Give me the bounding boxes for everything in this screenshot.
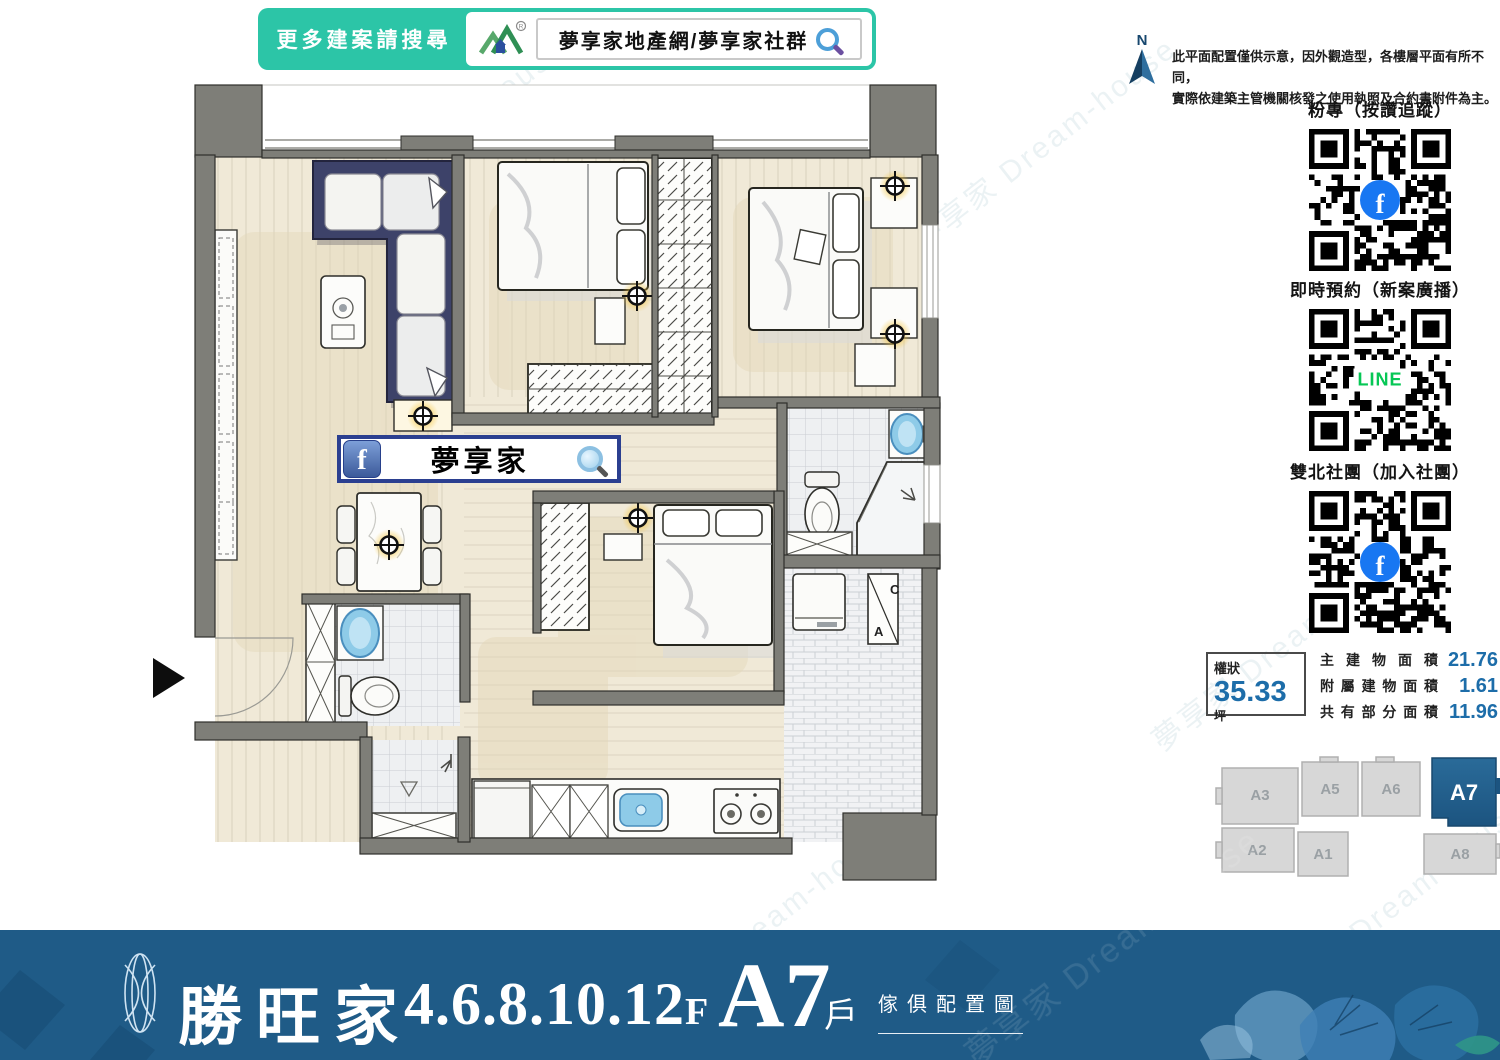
qr-code-facebook-group: f bbox=[1309, 491, 1451, 633]
unit-suffix: 戶 bbox=[824, 988, 858, 1037]
search-banner: 更多建案請搜尋 R 夢享家地產網/夢享家社群 bbox=[258, 8, 876, 70]
area-row-value: 11.96 bbox=[1438, 701, 1498, 724]
area-row-label: 附屬建物面積 bbox=[1320, 676, 1438, 696]
qr-section-facebook-page: 粉專（按讚追蹤） f bbox=[1278, 96, 1482, 271]
svg-text:R: R bbox=[519, 24, 524, 31]
facebook-icon: f bbox=[343, 440, 381, 478]
search-banner-body: R 夢享家地產網/夢享家社群 bbox=[466, 12, 872, 66]
unit-number: A7 bbox=[718, 942, 830, 1048]
area-row-label: 主建物面積 bbox=[1320, 650, 1438, 670]
pillow bbox=[833, 194, 859, 252]
north-label: N bbox=[1126, 32, 1158, 49]
north-arrow-icon bbox=[1129, 49, 1155, 85]
floor-numbers: 4.6.8.10.12F bbox=[404, 970, 709, 1039]
unit-label-a1: A1 bbox=[1313, 846, 1332, 863]
line-icon: LINE bbox=[1353, 369, 1406, 392]
flyer-page: 夢享家 Dream-house 夢享家 Dream-house 夢享家 Drea… bbox=[0, 0, 1500, 1060]
search-input[interactable]: 夢享家地產網/夢享家社群 bbox=[536, 18, 862, 60]
desk bbox=[855, 344, 895, 386]
facebook-search-banner: f 夢享家 bbox=[337, 435, 621, 483]
fridge bbox=[474, 781, 530, 838]
unit-label-a8: A8 bbox=[1450, 846, 1469, 863]
area-row-label: 共有部分面積 bbox=[1320, 702, 1438, 722]
qr-section-title: 粉專（按讚追蹤） bbox=[1278, 96, 1482, 121]
pillow bbox=[833, 260, 859, 318]
brand-name: 勝旺家 bbox=[178, 966, 412, 1058]
washing-machine bbox=[793, 574, 845, 630]
north-indicator: N bbox=[1126, 32, 1158, 90]
nightstand bbox=[595, 298, 625, 344]
watercolor-flowers bbox=[1200, 985, 1500, 1060]
unit-label-a5: A5 bbox=[1320, 781, 1339, 798]
pillow bbox=[617, 168, 645, 224]
kitchen-cabinet-left bbox=[215, 230, 237, 560]
toilet bbox=[351, 677, 399, 715]
area-row-main: 主建物面積 21.76 坪 bbox=[1320, 647, 1500, 673]
area-row-ancillary: 附屬建物面積 1.61 坪 bbox=[1320, 673, 1500, 699]
unit-key-diagram: A3 A5 A6 A2 A1 A8 A7 bbox=[1208, 748, 1500, 880]
pillow bbox=[663, 510, 709, 536]
unit-label-a2: A2 bbox=[1247, 842, 1266, 859]
toilet-tank bbox=[805, 472, 839, 487]
unit-label-a6: A6 bbox=[1381, 781, 1400, 798]
qr-section-facebook-group: 雙北社團（加入社團） f bbox=[1278, 458, 1482, 633]
qr-section-title: 雙北社團（加入社團） bbox=[1278, 458, 1482, 483]
unit-label-a3: A3 bbox=[1250, 787, 1269, 804]
kitchen bbox=[472, 779, 780, 840]
entrance-arrow-icon bbox=[153, 658, 185, 698]
area-row-shared: 共有部分面積 11.96 坪 bbox=[1320, 699, 1500, 725]
disclaimer-line-1: 此平面配置僅供示意，因外觀造型，各樓層平面有所不同， bbox=[1172, 46, 1500, 88]
facebook-search-text: 夢享家 bbox=[383, 438, 577, 480]
search-prompt-button[interactable]: 更多建案請搜尋 bbox=[262, 12, 466, 66]
top-balcony bbox=[262, 85, 870, 155]
facebook-icon: f bbox=[1360, 180, 1400, 220]
qr-section-line: 即時預約（新案廣播） LINE bbox=[1278, 276, 1482, 451]
qr-section-title: 即時預約（新案廣播） bbox=[1278, 276, 1482, 301]
dining-chair bbox=[337, 548, 355, 585]
unit-label-a7: A7 bbox=[1450, 780, 1478, 805]
facebook-icon: f bbox=[1360, 542, 1400, 582]
dream-house-logo: R bbox=[476, 18, 526, 60]
closet-column bbox=[657, 158, 712, 420]
magnifier-icon bbox=[577, 446, 603, 472]
dining-chair bbox=[337, 506, 355, 543]
qr-code-facebook-page: f bbox=[1309, 129, 1451, 271]
search-icon[interactable] bbox=[816, 28, 839, 51]
pillow bbox=[716, 510, 762, 536]
qr-code-line: LINE bbox=[1309, 309, 1451, 451]
search-input-text: 夢享家地產網/夢享家社群 bbox=[559, 25, 809, 54]
dining-chair bbox=[423, 506, 441, 543]
nightstand bbox=[604, 534, 642, 560]
deed-value: 35.33 bbox=[1214, 676, 1287, 708]
bed-throw bbox=[794, 230, 826, 265]
stove bbox=[714, 789, 778, 833]
pillow bbox=[617, 230, 645, 284]
ac-label-top: C bbox=[890, 582, 900, 597]
dining-chair bbox=[423, 548, 441, 585]
deed-label: 權狀 bbox=[1214, 658, 1298, 677]
area-breakdown: 主建物面積 21.76 坪 附屬建物面積 1.61 坪 共有部分面積 11.96… bbox=[1320, 647, 1500, 725]
toilet-tank bbox=[339, 676, 351, 716]
plan-type-subtitle: 傢俱配置圖 bbox=[878, 988, 1023, 1034]
area-row-value: 21.76 bbox=[1438, 649, 1498, 672]
ac-unit: C A bbox=[868, 574, 900, 644]
deed-unit: 坪 bbox=[1214, 709, 1226, 723]
brand-logo bbox=[112, 950, 168, 1036]
ac-label-bottom: A bbox=[874, 624, 884, 639]
area-row-value: 1.61 bbox=[1438, 675, 1498, 698]
deed-area-box: 權狀 35.33坪 bbox=[1206, 652, 1306, 716]
